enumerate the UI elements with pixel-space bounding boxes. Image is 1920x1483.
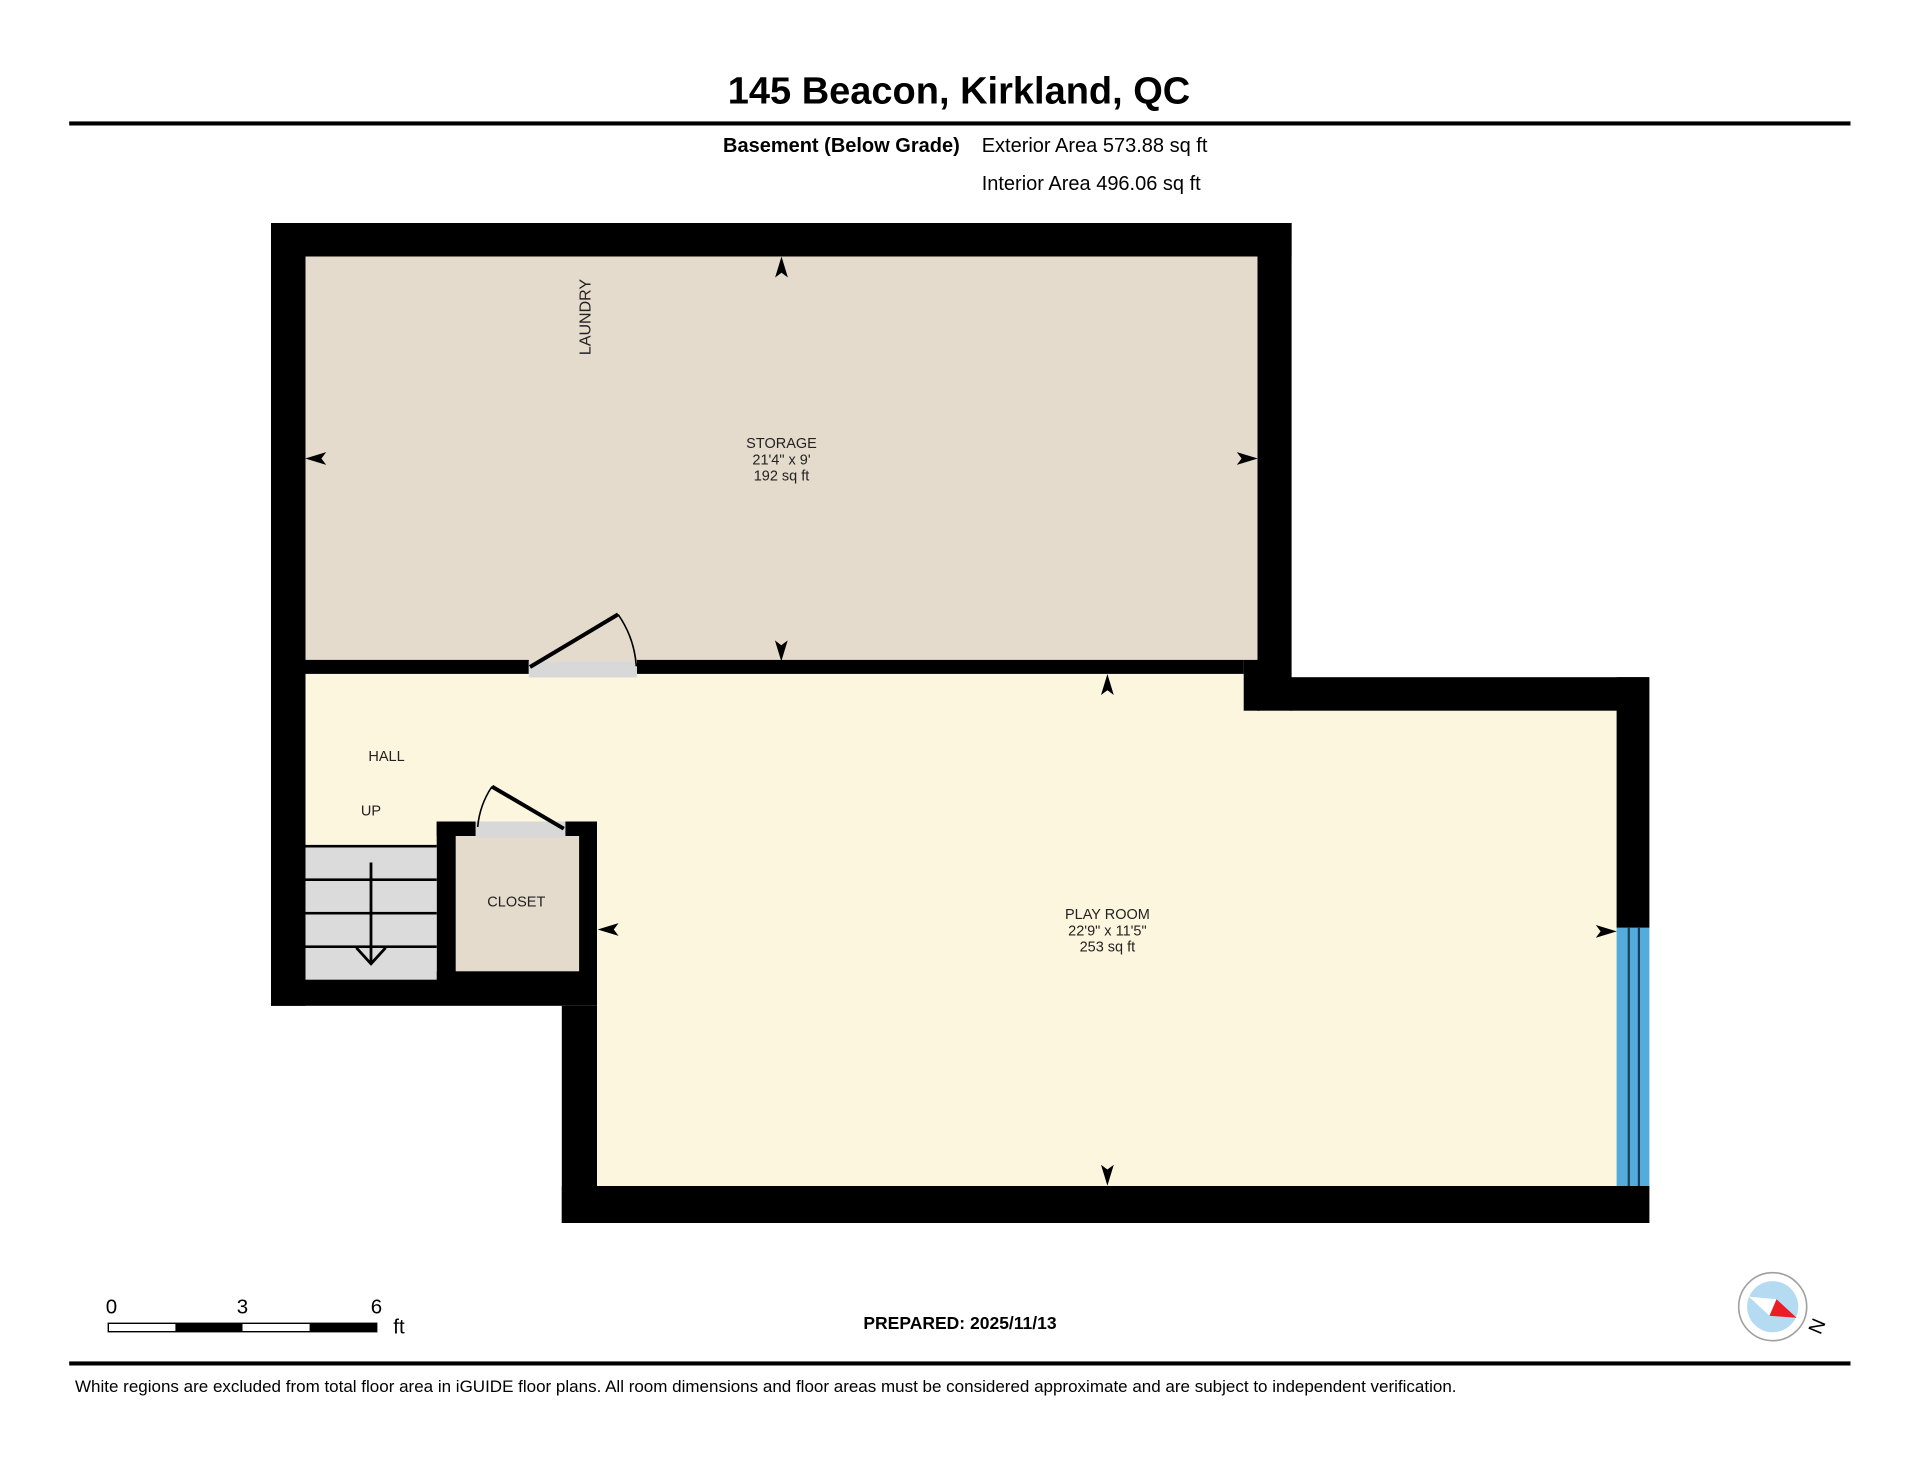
svg-text:192 sq ft: 192 sq ft bbox=[754, 468, 810, 484]
svg-text:145 Beacon, Kirkland, QC: 145 Beacon, Kirkland, QC bbox=[728, 70, 1191, 112]
svg-text:CLOSET: CLOSET bbox=[487, 895, 545, 911]
svg-text:Exterior Area 573.88 sq ft: Exterior Area 573.88 sq ft bbox=[982, 135, 1208, 157]
svg-text:21'4" x 9': 21'4" x 9' bbox=[752, 452, 810, 468]
svg-text:6: 6 bbox=[371, 1296, 382, 1319]
svg-text:UP: UP bbox=[361, 804, 381, 820]
svg-text:PLAY ROOM: PLAY ROOM bbox=[1065, 907, 1150, 923]
svg-text:Interior Area 496.06 sq ft: Interior Area 496.06 sq ft bbox=[982, 173, 1201, 195]
svg-text:3: 3 bbox=[237, 1296, 248, 1319]
svg-text:PREPARED: 2025/11/13: PREPARED: 2025/11/13 bbox=[863, 1313, 1057, 1333]
svg-text:ft: ft bbox=[393, 1315, 405, 1338]
svg-text:Basement (Below Grade): Basement (Below Grade) bbox=[723, 135, 960, 157]
svg-text:22'9" x 11'5": 22'9" x 11'5" bbox=[1068, 923, 1146, 939]
svg-text:0: 0 bbox=[106, 1296, 117, 1319]
svg-text:White regions are excluded fro: White regions are excluded from total fl… bbox=[75, 1377, 1457, 1396]
svg-text:HALL: HALL bbox=[368, 749, 404, 765]
svg-text:253 sq ft: 253 sq ft bbox=[1080, 940, 1136, 956]
svg-text:STORAGE: STORAGE bbox=[746, 436, 817, 452]
svg-text:LAUNDRY: LAUNDRY bbox=[578, 279, 595, 356]
